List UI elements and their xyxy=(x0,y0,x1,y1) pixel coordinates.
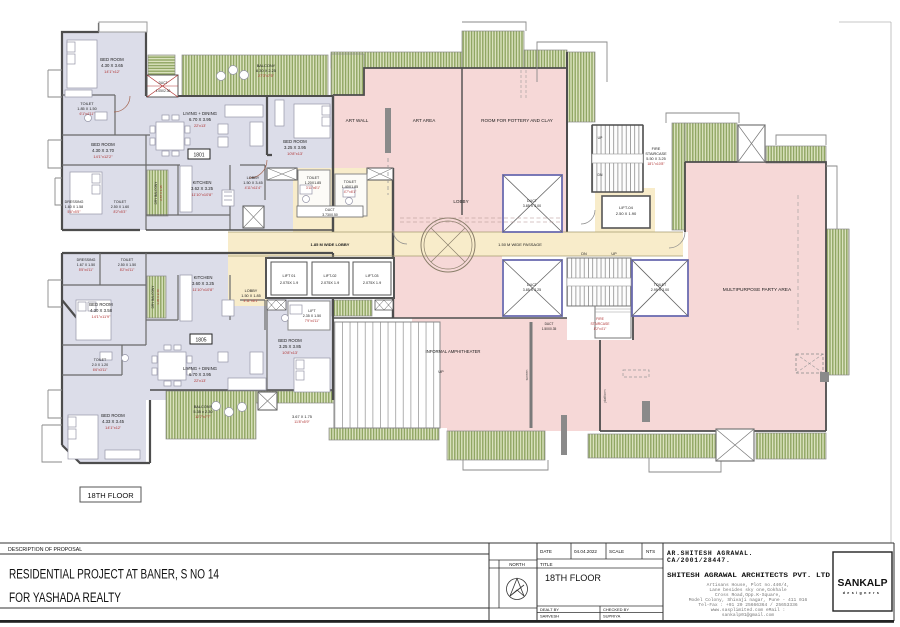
svg-text:4'11"x6'1": 4'11"x6'1" xyxy=(243,299,259,303)
svg-text:2.50 X 1.50: 2.50 X 1.50 xyxy=(118,263,136,267)
svg-text:NTS: NTS xyxy=(646,549,655,554)
svg-text:5'5"x4'11": 5'5"x4'11" xyxy=(79,268,94,272)
svg-text:27'3"x7'5": 27'3"x7'5" xyxy=(258,74,274,78)
svg-text:2.075X 1.9: 2.075X 1.9 xyxy=(363,281,381,285)
svg-text:2.35 X 1.50: 2.35 X 1.50 xyxy=(303,314,321,318)
svg-text:KITCHEN: KITCHEN xyxy=(194,275,213,280)
svg-text:TOILET: TOILET xyxy=(344,180,357,184)
svg-text:SCALE: SCALE xyxy=(609,549,624,554)
svg-text:3.73X0.50: 3.73X0.50 xyxy=(322,213,338,217)
svg-text:3.85 X 3.25: 3.85 X 3.25 xyxy=(523,288,541,292)
svg-text:6'1"x4'11": 6'1"x4'11" xyxy=(79,112,95,116)
svg-text:TOILET: TOILET xyxy=(94,358,107,362)
svg-text:7'9"x4'11": 7'9"x4'11" xyxy=(305,319,320,323)
svg-text:TITLE: TITLE xyxy=(540,562,553,567)
svg-text:2.50 X 1.60: 2.50 X 1.60 xyxy=(111,205,129,209)
svg-text:DUCT: DUCT xyxy=(325,208,334,212)
svg-text:1.50X0.35: 1.50X0.35 xyxy=(542,327,557,331)
svg-text:2.075X 1.9: 2.075X 1.9 xyxy=(280,281,298,285)
svg-text:SHITESH AGRAWAL ARCHITECTS PVT: SHITESH AGRAWAL ARCHITECTS PVT. LTD xyxy=(667,572,830,579)
svg-text:18TH FLOOR: 18TH FLOOR xyxy=(87,491,134,500)
svg-text:AR.SHITESH AGRAWAL.: AR.SHITESH AGRAWAL. xyxy=(667,550,753,557)
svg-text:2.95 X 3.00: 2.95 X 3.00 xyxy=(651,288,669,292)
svg-text:3.67 X 1.75: 3.67 X 1.75 xyxy=(292,414,312,419)
svg-text:22'x13': 22'x13' xyxy=(194,378,206,383)
svg-text:RESIDENTIAL PROJECT AT BANER,: RESIDENTIAL PROJECT AT BANER, S NO 14 xyxy=(9,567,219,582)
svg-text:DUCT: DUCT xyxy=(527,199,538,203)
svg-text:3.25 X 3.95: 3.25 X 3.95 xyxy=(284,145,307,150)
svg-text:LOBBY: LOBBY xyxy=(245,289,258,293)
svg-text:LIFT-02: LIFT-02 xyxy=(323,274,336,278)
svg-text:TOILET: TOILET xyxy=(654,283,667,287)
svg-text:10'8"x13': 10'8"x13' xyxy=(282,350,298,355)
svg-text:ROOM FOR POTTERY AND CLAY: ROOM FOR POTTERY AND CLAY xyxy=(481,118,553,123)
svg-text:TOILET: TOILET xyxy=(114,200,127,204)
svg-text:LIFT-04: LIFT-04 xyxy=(619,205,634,210)
svg-text:DEALT BY: DEALT BY xyxy=(540,607,559,612)
svg-text:3.60 X 3.25: 3.60 X 3.25 xyxy=(192,281,215,286)
svg-text:DRY BALCONY: DRY BALCONY xyxy=(154,181,158,205)
svg-text:LOBBY: LOBBY xyxy=(247,176,260,180)
svg-text:4'11"x11'4": 4'11"x11'4" xyxy=(245,186,262,190)
svg-text:14'1"x12': 14'1"x12' xyxy=(105,425,121,430)
svg-text:8.30 X 2.25: 8.30 X 2.25 xyxy=(256,68,276,73)
svg-text:3.62 X 3.25: 3.62 X 3.25 xyxy=(191,186,214,191)
svg-text:ART AREA: ART AREA xyxy=(413,118,436,123)
svg-text:14'1"x12'2": 14'1"x12'2" xyxy=(93,154,113,159)
svg-text:MULTIPURPOSE PARTY AREA: MULTIPURPOSE PARTY AREA xyxy=(723,287,792,293)
svg-text:TOILET: TOILET xyxy=(307,176,320,180)
svg-text:KITCHEN: KITCHEN xyxy=(193,180,212,185)
svg-text:UP: UP xyxy=(598,136,603,140)
svg-text:11'10"x10'8": 11'10"x10'8" xyxy=(191,192,213,197)
svg-text:1.85 X 1.50: 1.85 X 1.50 xyxy=(77,107,96,111)
svg-text:DRESSING: DRESSING xyxy=(65,200,84,204)
svg-text:2.50 X 1.90: 2.50 X 1.90 xyxy=(616,211,637,216)
svg-text:1.40X1.85: 1.40X1.85 xyxy=(342,185,358,189)
svg-text:DESCRIPTION OF PROPOSAL: DESCRIPTION OF PROPOSAL xyxy=(8,547,82,553)
svg-text:DUCT: DUCT xyxy=(527,283,538,287)
svg-text:NORTH: NORTH xyxy=(509,562,525,567)
svg-text:4.33 X 3.45: 4.33 X 3.45 xyxy=(102,419,125,424)
svg-text:ART WALL: ART WALL xyxy=(346,118,369,123)
svg-text:sankalp01@gmail.com: sankalp01@gmail.com xyxy=(722,612,775,618)
svg-text:TOILET: TOILET xyxy=(121,258,134,262)
svg-text:1805: 1805 xyxy=(195,338,206,344)
svg-text:1.50 M WIDE PASSAGE: 1.50 M WIDE PASSAGE xyxy=(498,242,542,247)
svg-text:BED ROOM: BED ROOM xyxy=(283,139,307,144)
svg-text:screen: screen xyxy=(525,370,529,381)
svg-text:1.05X2.30: 1.05X2.30 xyxy=(156,89,171,93)
svg-text:LIFT 01: LIFT 01 xyxy=(282,274,295,278)
svg-text:FIRE: FIRE xyxy=(596,317,604,321)
svg-text:FIRE: FIRE xyxy=(652,147,661,151)
svg-text:FOR YASHADA REALTY: FOR YASHADA REALTY xyxy=(9,590,121,605)
svg-text:TOILET: TOILET xyxy=(80,102,94,106)
svg-text:8'2"x4'11": 8'2"x4'11" xyxy=(120,268,135,272)
svg-text:BED ROOM: BED ROOM xyxy=(278,338,302,343)
svg-text:STAIRCASE: STAIRCASE xyxy=(645,152,667,156)
svg-text:STAIRCASE: STAIRCASE xyxy=(591,322,611,326)
svg-text:DN: DN xyxy=(581,252,587,256)
svg-text:SARVESH: SARVESH xyxy=(540,614,559,619)
svg-text:LIVING + DINING: LIVING + DINING xyxy=(183,111,218,116)
svg-text:8'2"x4'1": 8'2"x4'1" xyxy=(594,327,607,331)
svg-text:2.0 X 1.20: 2.0 X 1.20 xyxy=(92,363,108,367)
svg-text:LIVING + DINING: LIVING + DINING xyxy=(183,366,218,371)
svg-text:1.35 X 2.40: 1.35 X 2.40 xyxy=(156,289,160,305)
svg-text:6.70 X 3.95: 6.70 X 3.95 xyxy=(189,372,212,377)
svg-text:LOBBY: LOBBY xyxy=(453,199,468,204)
svg-text:4.30 X 3.65: 4.30 X 3.65 xyxy=(101,63,124,68)
svg-text:6'6"x3'11": 6'6"x3'11" xyxy=(93,368,108,372)
svg-text:designers: designers xyxy=(843,591,882,595)
svg-text:UP: UP xyxy=(438,370,444,374)
svg-text:UP: UP xyxy=(611,252,617,256)
svg-text:5'6"x5'5": 5'6"x5'5" xyxy=(68,210,82,214)
svg-text:1.60 X 1.58: 1.60 X 1.58 xyxy=(65,205,83,209)
svg-text:SANKALP: SANKALP xyxy=(838,577,888,589)
svg-text:8'2"x5'3": 8'2"x5'3" xyxy=(114,210,128,214)
svg-text:BED ROOM: BED ROOM xyxy=(100,57,124,62)
svg-text:22'x13': 22'x13' xyxy=(194,123,206,128)
svg-text:14'1"x12': 14'1"x12' xyxy=(104,69,120,74)
svg-text:DRY BALCONY: DRY BALCONY xyxy=(151,285,155,309)
svg-text:18TH FLOOR: 18TH FLOOR xyxy=(545,573,601,584)
svg-text:18'1"x10'8": 18'1"x10'8" xyxy=(647,162,665,166)
svg-text:1.50 X 1.85: 1.50 X 1.85 xyxy=(241,294,260,298)
svg-text:1.85 M WIDE LOBBY: 1.85 M WIDE LOBBY xyxy=(311,242,350,247)
svg-text:DN: DN xyxy=(598,173,603,177)
svg-text:3'11"x6'1": 3'11"x6'1" xyxy=(306,186,321,190)
svg-text:11'8"x5'9": 11'8"x5'9" xyxy=(294,420,310,424)
svg-text:10'8"x13': 10'8"x13' xyxy=(287,151,303,156)
svg-text:DATE: DATE xyxy=(540,549,552,554)
svg-text:LIFT: LIFT xyxy=(308,309,316,313)
svg-text:platform: platform xyxy=(603,390,607,403)
svg-text:4'7"x6'1": 4'7"x6'1" xyxy=(344,190,357,194)
svg-text:6.70 X 3.95: 6.70 X 3.95 xyxy=(189,117,212,122)
svg-text:DUCT: DUCT xyxy=(545,322,554,326)
svg-text:1801: 1801 xyxy=(193,153,204,159)
svg-text:11'10"x10'8": 11'10"x10'8" xyxy=(192,287,214,292)
svg-text:12'7"x7'7": 12'7"x7'7" xyxy=(195,415,211,419)
svg-text:04.04.2022: 04.04.2022 xyxy=(574,549,597,554)
svg-text:DUCT: DUCT xyxy=(159,81,168,85)
svg-text:BED ROOM: BED ROOM xyxy=(91,142,115,147)
svg-text:BED ROOM: BED ROOM xyxy=(101,413,125,418)
svg-text:CA/2001/28447.: CA/2001/28447. xyxy=(667,557,731,564)
svg-text:5.35 x 2.30: 5.35 x 2.30 xyxy=(193,409,213,414)
svg-text:BED ROOM: BED ROOM xyxy=(89,302,113,307)
svg-text:4.30 X 3.70: 4.30 X 3.70 xyxy=(92,148,115,153)
svg-text:SUPRIYA: SUPRIYA xyxy=(603,614,621,619)
svg-text:14'1"x11'9": 14'1"x11'9" xyxy=(92,314,112,319)
svg-text:DRESSING: DRESSING xyxy=(77,258,96,262)
svg-text:3.25 X 3.85: 3.25 X 3.85 xyxy=(279,344,302,349)
svg-text:LIFT-03: LIFT-03 xyxy=(365,274,378,278)
svg-text:INFORMAL AMPHITHEATER: INFORMAL AMPHITHEATER xyxy=(426,349,481,354)
svg-text:3.85 X 3.00: 3.85 X 3.00 xyxy=(523,204,541,208)
svg-text:1.67 X 1.50: 1.67 X 1.50 xyxy=(77,263,95,267)
svg-text:4.30 X 3.58: 4.30 X 3.58 xyxy=(90,308,113,313)
svg-text:2.57 X 1.35: 2.57 X 1.35 xyxy=(159,185,163,201)
svg-text:2.075X 1.9: 2.075X 1.9 xyxy=(321,281,339,285)
svg-text:1.20X1.85: 1.20X1.85 xyxy=(305,181,321,185)
svg-text:CHECKED BY: CHECKED BY xyxy=(603,607,629,612)
svg-text:5.50 X 3.25: 5.50 X 3.25 xyxy=(646,157,665,161)
svg-text:1.50 X 3.45: 1.50 X 3.45 xyxy=(243,181,262,185)
